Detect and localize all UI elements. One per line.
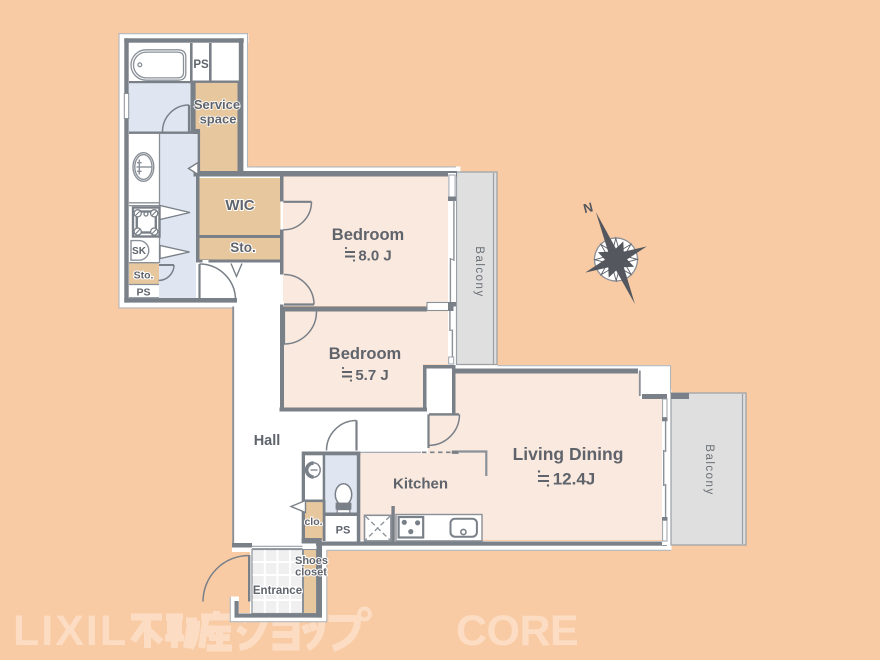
- svg-text:Kitchen: Kitchen: [393, 476, 448, 493]
- svg-text:Sto.: Sto.: [134, 270, 154, 282]
- svg-text:12.4J: 12.4J: [553, 470, 596, 489]
- svg-text:Living Dining: Living Dining: [513, 444, 624, 464]
- svg-text:Shoes: Shoes: [295, 555, 328, 567]
- svg-text:closet: closet: [295, 567, 327, 579]
- svg-text:8.0 J: 8.0 J: [358, 248, 391, 265]
- svg-text:LIXIL: LIXIL: [13, 607, 128, 655]
- svg-text:SK: SK: [132, 246, 147, 257]
- svg-text:clo.: clo.: [304, 516, 322, 528]
- svg-text:PS: PS: [136, 287, 150, 299]
- svg-text:Hall: Hall: [254, 433, 281, 449]
- svg-text:Entrance: Entrance: [253, 585, 302, 597]
- svg-text:5.7 J: 5.7 J: [355, 367, 388, 384]
- svg-text:Bedroom: Bedroom: [329, 345, 401, 363]
- svg-text:Bedroom: Bedroom: [332, 226, 404, 244]
- svg-text:CORE: CORE: [456, 607, 578, 655]
- svg-text:Sto.: Sto.: [230, 240, 256, 255]
- svg-text:PS: PS: [336, 525, 351, 537]
- svg-text:Balcony: Balcony: [703, 444, 715, 495]
- svg-text:PS: PS: [193, 59, 209, 71]
- svg-text:Service: Service: [194, 97, 240, 112]
- svg-text:Balcony: Balcony: [473, 246, 485, 297]
- svg-text:WIC: WIC: [225, 197, 254, 214]
- svg-text:space: space: [200, 112, 237, 127]
